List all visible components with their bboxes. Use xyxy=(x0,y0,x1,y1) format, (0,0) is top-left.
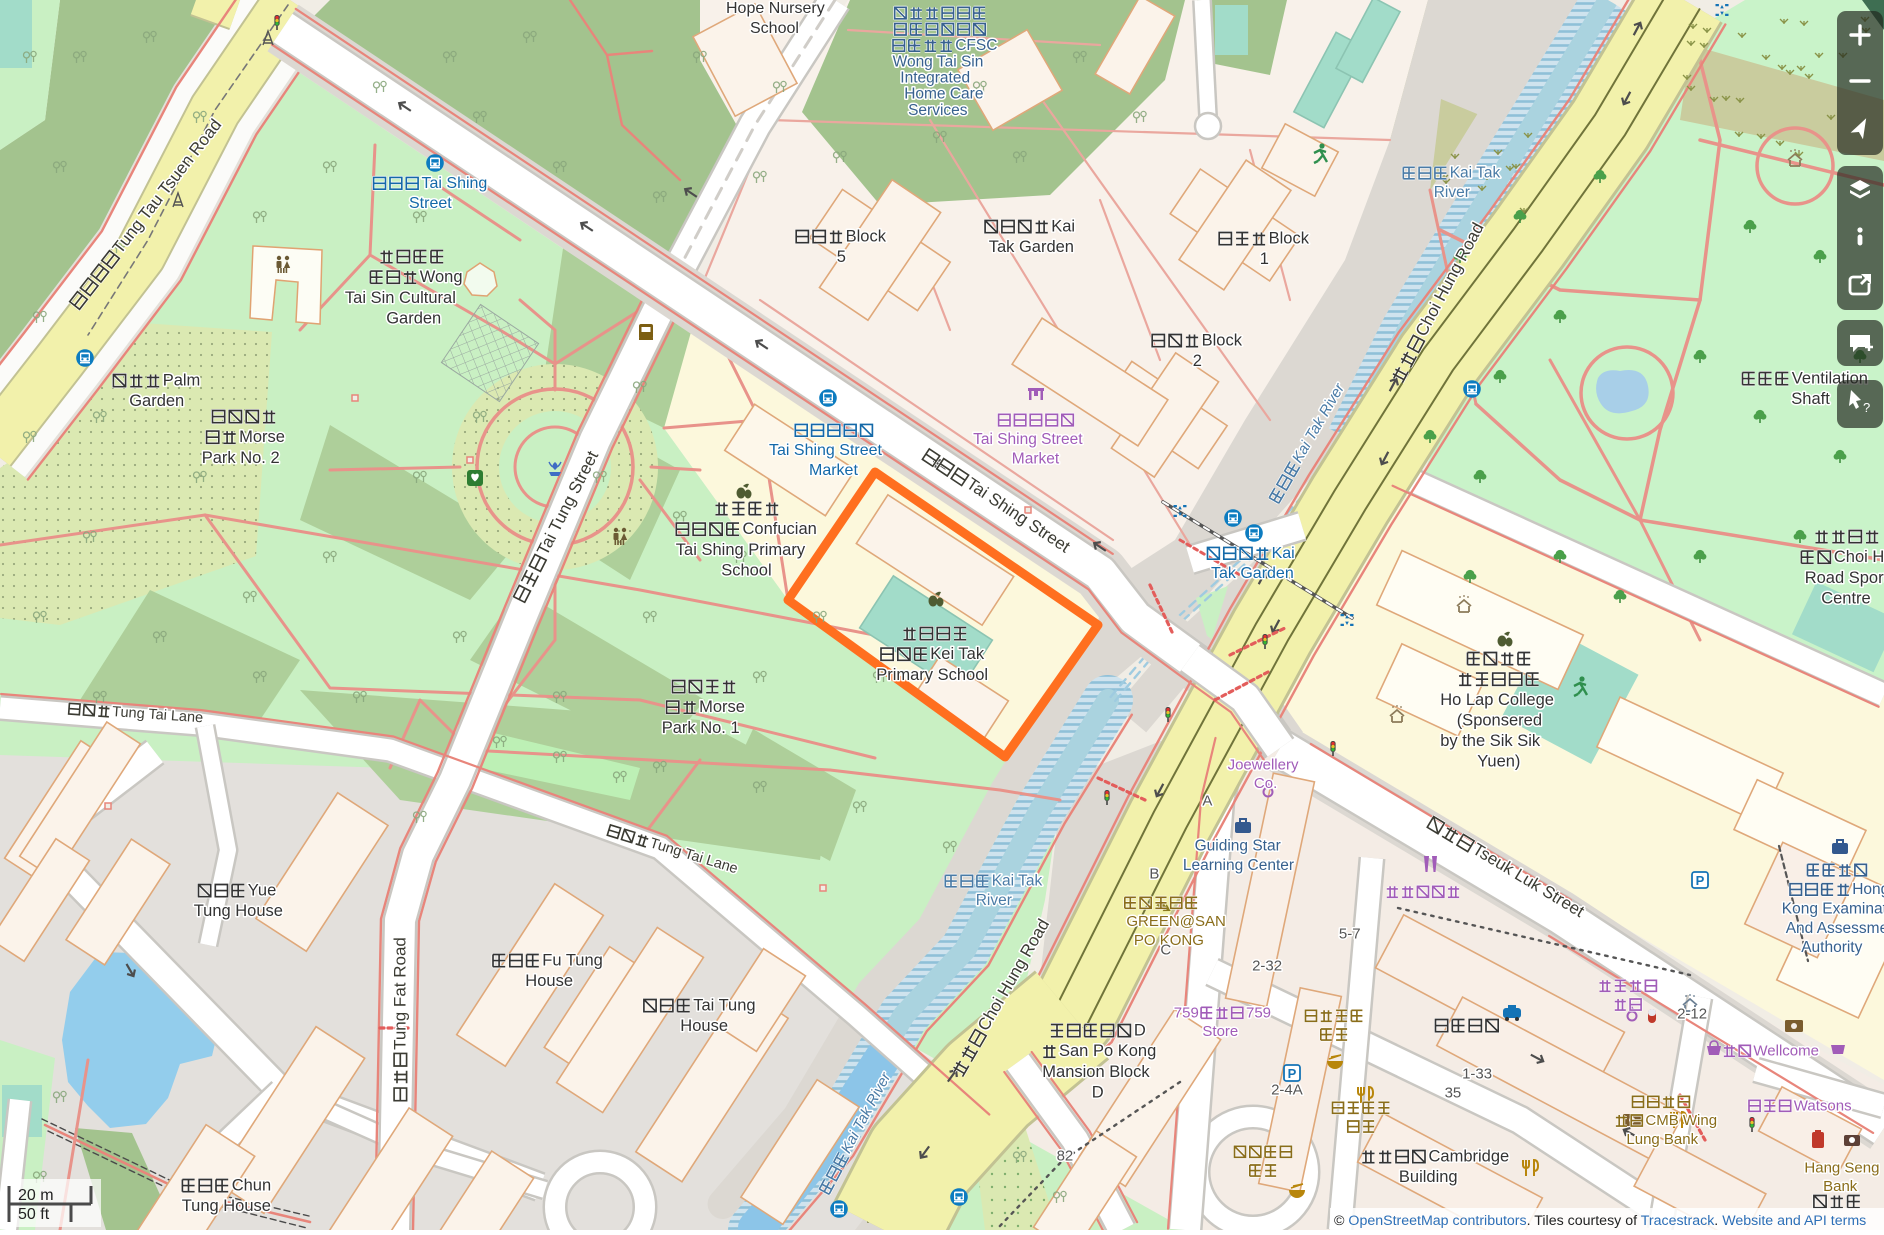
svg-text:GREEN@SAN: GREEN@SAN xyxy=(1126,913,1225,930)
svg-text:Kei Tak: Kei Tak xyxy=(930,645,985,663)
svg-text:5-7: 5-7 xyxy=(1339,925,1361,942)
svg-text:Tai Shing Primary: Tai Shing Primary xyxy=(676,541,806,559)
svg-text:Road Sport: Road Sport xyxy=(1805,569,1884,587)
svg-text:Ho Lap College: Ho Lap College xyxy=(1440,691,1554,709)
svg-text:35: 35 xyxy=(1445,1084,1462,1101)
svg-text:Morse: Morse xyxy=(239,428,285,446)
svg-text:Tung House: Tung House xyxy=(194,902,283,920)
svg-text:Confucian: Confucian xyxy=(743,520,817,538)
svg-text:Services: Services xyxy=(908,102,968,119)
svg-text:Kai: Kai xyxy=(1272,545,1295,562)
svg-text:Store: Store xyxy=(1202,1023,1238,1040)
svg-text:Co.: Co. xyxy=(1254,775,1277,792)
svg-text:1: 1 xyxy=(1260,250,1269,268)
svg-text:Block: Block xyxy=(1269,230,1310,248)
svg-text:Bank: Bank xyxy=(1823,1178,1858,1195)
svg-text:Chun: Chun xyxy=(232,1177,271,1195)
svg-text:2-4A: 2-4A xyxy=(1271,1081,1303,1098)
svg-text:Palm: Palm xyxy=(163,372,201,390)
svg-text:Morse: Morse xyxy=(699,698,745,716)
svg-text:School: School xyxy=(721,561,771,579)
svg-text:Mansion Block: Mansion Block xyxy=(1042,1063,1150,1081)
svg-text:?: ? xyxy=(1863,400,1870,415)
svg-text:School: School xyxy=(750,20,799,37)
svg-text:Watsons: Watsons xyxy=(1794,1097,1852,1114)
svg-text:Tung House: Tung House xyxy=(182,1197,271,1215)
svg-text:Choi Hu: Choi Hu xyxy=(1834,548,1884,566)
svg-text:Shaft: Shaft xyxy=(1791,390,1830,408)
svg-text:River: River xyxy=(976,892,1012,909)
svg-text:Yuen): Yuen) xyxy=(1477,753,1520,771)
svg-text:2-32: 2-32 xyxy=(1252,957,1282,974)
svg-text:5: 5 xyxy=(837,248,846,266)
svg-text:Market: Market xyxy=(809,462,858,479)
svg-text:Hong: Hong xyxy=(1852,881,1884,898)
svg-text:(Sponsered: (Sponsered xyxy=(1457,711,1542,729)
svg-text:Cambridge: Cambridge xyxy=(1429,1148,1510,1166)
svg-text:Lung Bank: Lung Bank xyxy=(1626,1131,1698,1148)
svg-text:Authority: Authority xyxy=(1801,939,1862,956)
svg-text:C: C xyxy=(1160,941,1171,958)
svg-text:Tai Shing Street: Tai Shing Street xyxy=(973,431,1083,448)
svg-text:Tak Garden: Tak Garden xyxy=(989,238,1074,256)
svg-text:Yue: Yue xyxy=(248,882,276,900)
svg-text:A: A xyxy=(1202,792,1212,809)
svg-text:Block: Block xyxy=(846,228,887,246)
svg-text:Learning Center: Learning Center xyxy=(1183,857,1294,874)
svg-text:Garden: Garden xyxy=(129,392,184,410)
svg-text:Street: Street xyxy=(409,195,452,212)
svg-text:Kong Examinati: Kong Examinati xyxy=(1782,901,1884,918)
svg-text:759: 759 xyxy=(1246,1004,1271,1021)
svg-text:B: B xyxy=(1149,865,1159,882)
svg-text:Tai Shing Street: Tai Shing Street xyxy=(769,442,883,459)
svg-text:CFSC: CFSC xyxy=(955,37,997,54)
svg-text:Garden: Garden xyxy=(386,309,441,327)
svg-text:759: 759 xyxy=(1174,1004,1199,1021)
svg-text:Wong: Wong xyxy=(420,268,463,286)
svg-text:D: D xyxy=(1092,1083,1104,1101)
svg-text:Market: Market xyxy=(1012,451,1060,468)
svg-text:Centre: Centre xyxy=(1821,589,1871,607)
svg-text:1-33: 1-33 xyxy=(1462,1065,1492,1082)
svg-text:Park No. 2: Park No. 2 xyxy=(202,449,280,467)
svg-text:Block: Block xyxy=(1202,332,1243,350)
svg-text:© OpenStreetMap contributors.: © OpenStreetMap contributors. Tiles cour… xyxy=(1334,1213,1866,1229)
svg-text:Building: Building xyxy=(1399,1168,1458,1186)
svg-text:20 m: 20 m xyxy=(18,1187,54,1204)
svg-text:Hope Nursery: Hope Nursery xyxy=(726,0,825,17)
svg-text:Integrated: Integrated xyxy=(900,70,970,87)
svg-text:And Assessmen: And Assessmen xyxy=(1786,920,1884,937)
svg-text:2-12: 2-12 xyxy=(1677,1005,1707,1022)
svg-text:House: House xyxy=(680,1017,728,1035)
svg-text:Wong Tai Sin: Wong Tai Sin xyxy=(893,53,984,70)
svg-text:Kai: Kai xyxy=(1051,218,1075,236)
svg-text:Tai Tung: Tai Tung xyxy=(693,997,755,1015)
svg-text:by the Sik Sik: by the Sik Sik xyxy=(1440,732,1541,750)
svg-text:Tak Garden: Tak Garden xyxy=(1211,565,1294,582)
svg-text:San Po Kong: San Po Kong xyxy=(1059,1042,1156,1060)
svg-text:2: 2 xyxy=(1193,352,1202,370)
svg-text:Primary School: Primary School xyxy=(876,666,988,684)
svg-text:River: River xyxy=(1434,184,1470,201)
svg-text:D: D xyxy=(1134,1022,1146,1040)
svg-text:Joewellery: Joewellery xyxy=(1228,756,1299,773)
svg-text:82: 82 xyxy=(1057,1147,1074,1164)
svg-text:CMB Wing: CMB Wing xyxy=(1645,1112,1717,1129)
svg-text:Home Care: Home Care xyxy=(904,86,983,103)
svg-text:50 ft: 50 ft xyxy=(18,1206,50,1223)
svg-text:Park No. 1: Park No. 1 xyxy=(662,719,740,737)
svg-text:Guiding Star: Guiding Star xyxy=(1195,838,1281,855)
svg-text:Tai Shing: Tai Shing xyxy=(422,175,488,192)
svg-text:Kai Tak: Kai Tak xyxy=(1450,165,1501,182)
svg-text:Hang Seng: Hang Seng xyxy=(1804,1159,1879,1176)
svg-text:Tung Fat Road: Tung Fat Road xyxy=(390,937,409,1050)
svg-text:Fu Tung: Fu Tung xyxy=(542,952,603,970)
svg-text:Wellcome: Wellcome xyxy=(1753,1042,1819,1059)
svg-text:Kai Tak: Kai Tak xyxy=(992,873,1043,890)
svg-text:House: House xyxy=(525,972,573,990)
svg-text:Tai Sin Cultural: Tai Sin Cultural xyxy=(345,289,456,307)
